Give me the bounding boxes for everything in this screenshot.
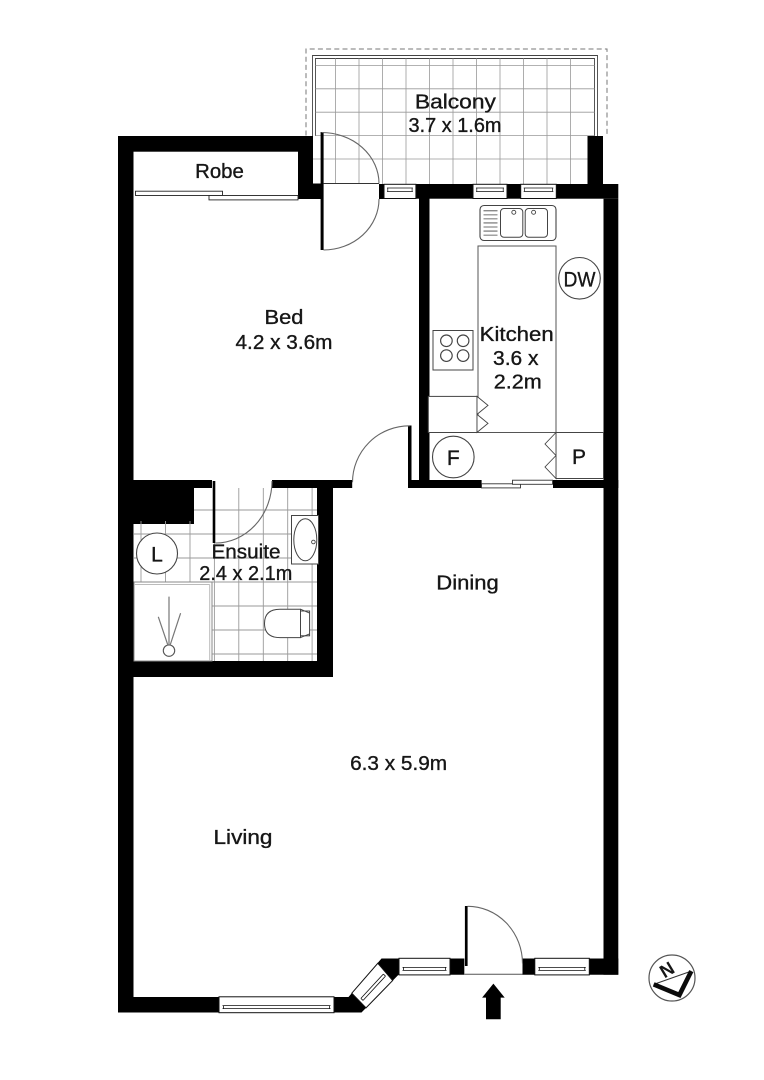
svg-text:3.7 x 1.6m: 3.7 x 1.6m bbox=[409, 115, 502, 137]
svg-text:Kitchen: Kitchen bbox=[480, 324, 554, 346]
svg-text:3.6 x: 3.6 x bbox=[493, 348, 539, 370]
svg-text:Ensuite: Ensuite bbox=[212, 542, 281, 564]
svg-text:2.2m: 2.2m bbox=[494, 372, 542, 394]
svg-text:Living: Living bbox=[214, 827, 273, 849]
svg-text:DW: DW bbox=[564, 269, 596, 292]
svg-text:L: L bbox=[151, 544, 163, 567]
svg-text:Bed: Bed bbox=[265, 307, 304, 329]
svg-text:P: P bbox=[572, 446, 586, 469]
svg-text:Balcony: Balcony bbox=[415, 92, 496, 114]
svg-text:2.4 x 2.1m: 2.4 x 2.1m bbox=[199, 563, 292, 585]
svg-text:6.3 x 5.9m: 6.3 x 5.9m bbox=[350, 753, 447, 775]
svg-text:Robe: Robe bbox=[195, 161, 244, 183]
svg-text:Dining: Dining bbox=[436, 573, 498, 595]
svg-text:4.2 x 3.6m: 4.2 x 3.6m bbox=[236, 332, 333, 354]
svg-text:F: F bbox=[447, 447, 460, 470]
